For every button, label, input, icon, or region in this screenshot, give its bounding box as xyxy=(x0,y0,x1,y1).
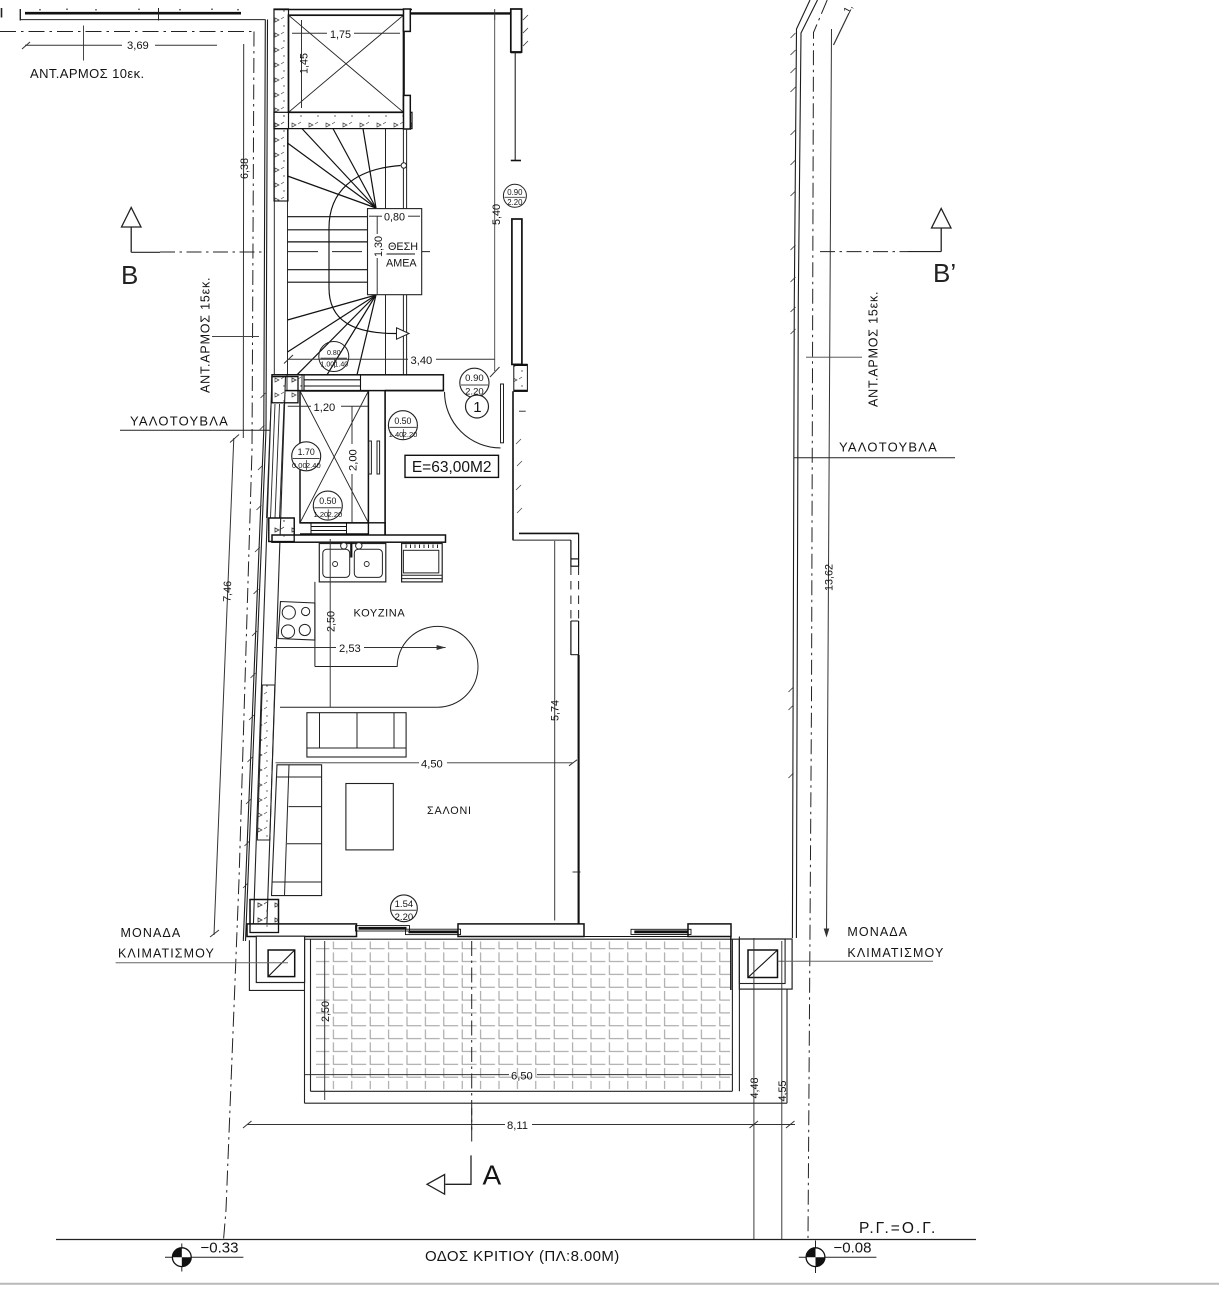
svg-text:ΘΕΣΗ: ΘΕΣΗ xyxy=(388,241,418,253)
svg-text:ΚΟΥΖΙΝΑ: ΚΟΥΖΙΝΑ xyxy=(354,608,406,620)
svg-text:6,50: 6,50 xyxy=(511,1070,533,1082)
svg-text:ΜΟΝΑΔΑ: ΜΟΝΑΔΑ xyxy=(847,925,908,939)
svg-text:1.00: 1.00 xyxy=(320,361,334,368)
svg-text:0.90: 0.90 xyxy=(507,188,523,197)
svg-text:0.00: 0.00 xyxy=(292,461,307,470)
svg-text:4,50: 4,50 xyxy=(421,758,443,770)
svg-text:1,45: 1,45 xyxy=(299,53,311,74)
svg-text:ΣΑΛΟΝΙ: ΣΑΛΟΝΙ xyxy=(427,805,472,817)
svg-text:2.20: 2.20 xyxy=(507,198,523,207)
svg-text:1.20: 1.20 xyxy=(314,510,329,519)
svg-text:−0.33: −0.33 xyxy=(201,1239,239,1256)
svg-text:ΜΟΝΑΔΑ: ΜΟΝΑΔΑ xyxy=(121,926,182,940)
svg-text:13,62: 13,62 xyxy=(824,564,836,591)
svg-text:1,30: 1,30 xyxy=(373,236,385,257)
svg-text:Ρ.Γ.=Ο.Γ.: Ρ.Γ.=Ο.Γ. xyxy=(859,1220,937,1237)
svg-text:0,80: 0,80 xyxy=(384,212,405,224)
svg-text:B’: B’ xyxy=(933,258,956,288)
svg-text:2,50: 2,50 xyxy=(326,611,338,632)
svg-text:7,46: 7,46 xyxy=(222,581,235,602)
svg-text:ΑΜΕΑ: ΑΜΕΑ xyxy=(386,258,417,270)
svg-text:1,75: 1,75 xyxy=(330,29,351,41)
svg-text:2.20: 2.20 xyxy=(328,510,343,519)
svg-text:ΚΛΙΜΑΤΙΣΜΟΥ: ΚΛΙΜΑΤΙΣΜΟΥ xyxy=(118,947,215,961)
svg-text:2,00: 2,00 xyxy=(348,449,360,471)
svg-text:ΥΑΛΟΤΟΥΒΛΑ: ΥΑΛΟΤΟΥΒΛΑ xyxy=(130,414,229,429)
svg-text:ΑΝΤ.ΑΡΜΟΣ 15εκ.: ΑΝΤ.ΑΡΜΟΣ 15εκ. xyxy=(867,291,881,407)
svg-text:0.90: 0.90 xyxy=(465,373,484,384)
svg-text:4,48: 4,48 xyxy=(749,1077,761,1098)
svg-text:B: B xyxy=(121,260,138,290)
svg-text:A: A xyxy=(483,1160,502,1191)
svg-text:−0.08: −0.08 xyxy=(834,1239,872,1256)
svg-text:ΚΛΙΜΑΤΙΣΜΟΥ: ΚΛΙΜΑΤΙΣΜΟΥ xyxy=(847,946,944,960)
svg-text:1.40: 1.40 xyxy=(334,361,348,368)
svg-text:ΑΝΤ.ΑΡΜΟΣ 10εκ.: ΑΝΤ.ΑΡΜΟΣ 10εκ. xyxy=(30,66,144,81)
svg-text:2.40: 2.40 xyxy=(306,461,321,470)
svg-text:ΥΑΛΟΤΟΥΒΛΑ: ΥΑΛΟΤΟΥΒΛΑ xyxy=(839,440,938,455)
svg-text:1.70: 1.70 xyxy=(298,447,315,457)
svg-text:E=63,00M2: E=63,00M2 xyxy=(412,459,492,476)
svg-text:2,50: 2,50 xyxy=(320,1001,332,1022)
svg-text:2.20: 2.20 xyxy=(403,430,418,439)
svg-text:ΑΝΤ.ΑΡΜΟΣ 15εκ.: ΑΝΤ.ΑΡΜΟΣ 15εκ. xyxy=(199,277,213,393)
svg-text:3,40: 3,40 xyxy=(411,355,433,367)
svg-text:8,11: 8,11 xyxy=(507,1120,528,1132)
svg-text:ΟΔΟΣ ΚΡΙΤΙΟΥ (ΠΛ:8.00Μ): ΟΔΟΣ ΚΡΙΤΙΟΥ (ΠΛ:8.00Μ) xyxy=(425,1248,620,1265)
svg-text:5,40: 5,40 xyxy=(491,204,503,225)
svg-text:1.54: 1.54 xyxy=(395,899,414,910)
svg-text:6,38: 6,38 xyxy=(239,158,251,179)
svg-text:5,74: 5,74 xyxy=(550,700,562,721)
svg-text:2,53: 2,53 xyxy=(339,643,361,655)
svg-text:0.50: 0.50 xyxy=(394,416,411,426)
svg-text:0.50: 0.50 xyxy=(319,496,336,506)
svg-text:1.40: 1.40 xyxy=(389,430,404,439)
svg-text:1: 1 xyxy=(473,399,481,416)
svg-text:3,69: 3,69 xyxy=(127,40,149,52)
svg-text:1,20: 1,20 xyxy=(314,402,336,414)
svg-text:0.80: 0.80 xyxy=(327,350,341,357)
svg-text:4,55: 4,55 xyxy=(777,1080,789,1101)
svg-text:2.20: 2.20 xyxy=(395,912,414,923)
